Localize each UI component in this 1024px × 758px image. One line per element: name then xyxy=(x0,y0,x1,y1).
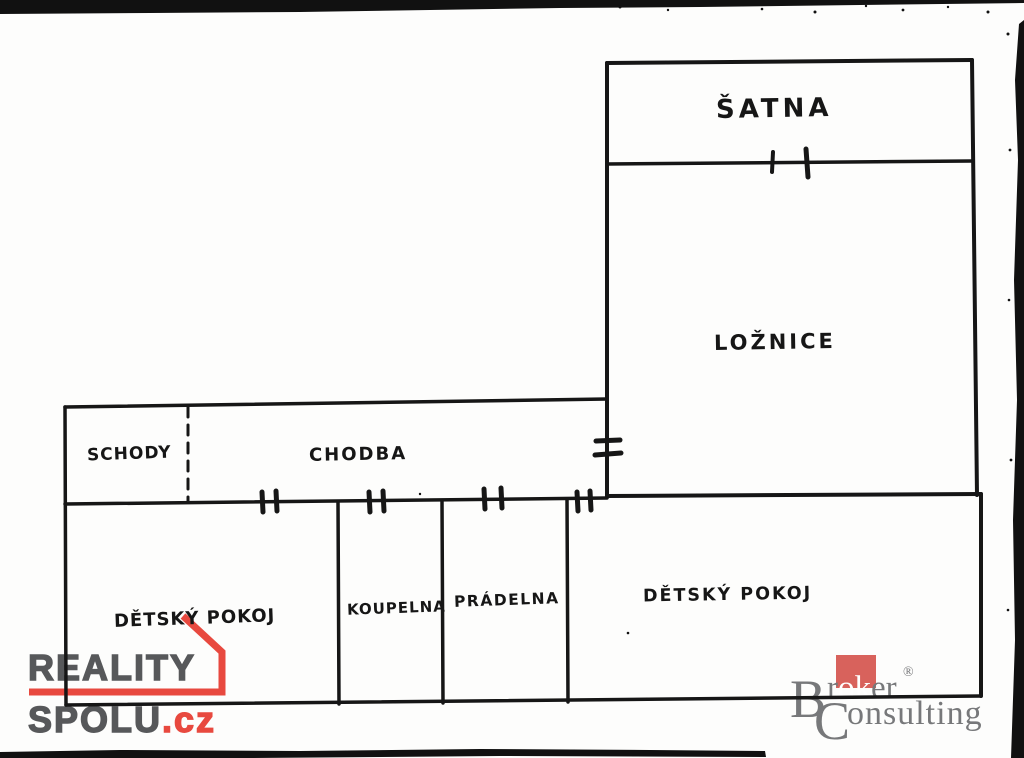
logo-layer: REALITY SPOLU.cz B roker ® C onsulting xyxy=(0,0,1024,758)
floor-plan-scan: REALITY SPOLU.cz B roker ® C onsulting xyxy=(0,0,1024,758)
reality-spolu-roof-line xyxy=(0,0,1024,758)
broker-consulting-initial-c: C xyxy=(814,694,850,748)
broker-consulting-registered-icon: ® xyxy=(903,666,914,680)
broker-consulting-onsulting: onsulting xyxy=(847,697,983,731)
